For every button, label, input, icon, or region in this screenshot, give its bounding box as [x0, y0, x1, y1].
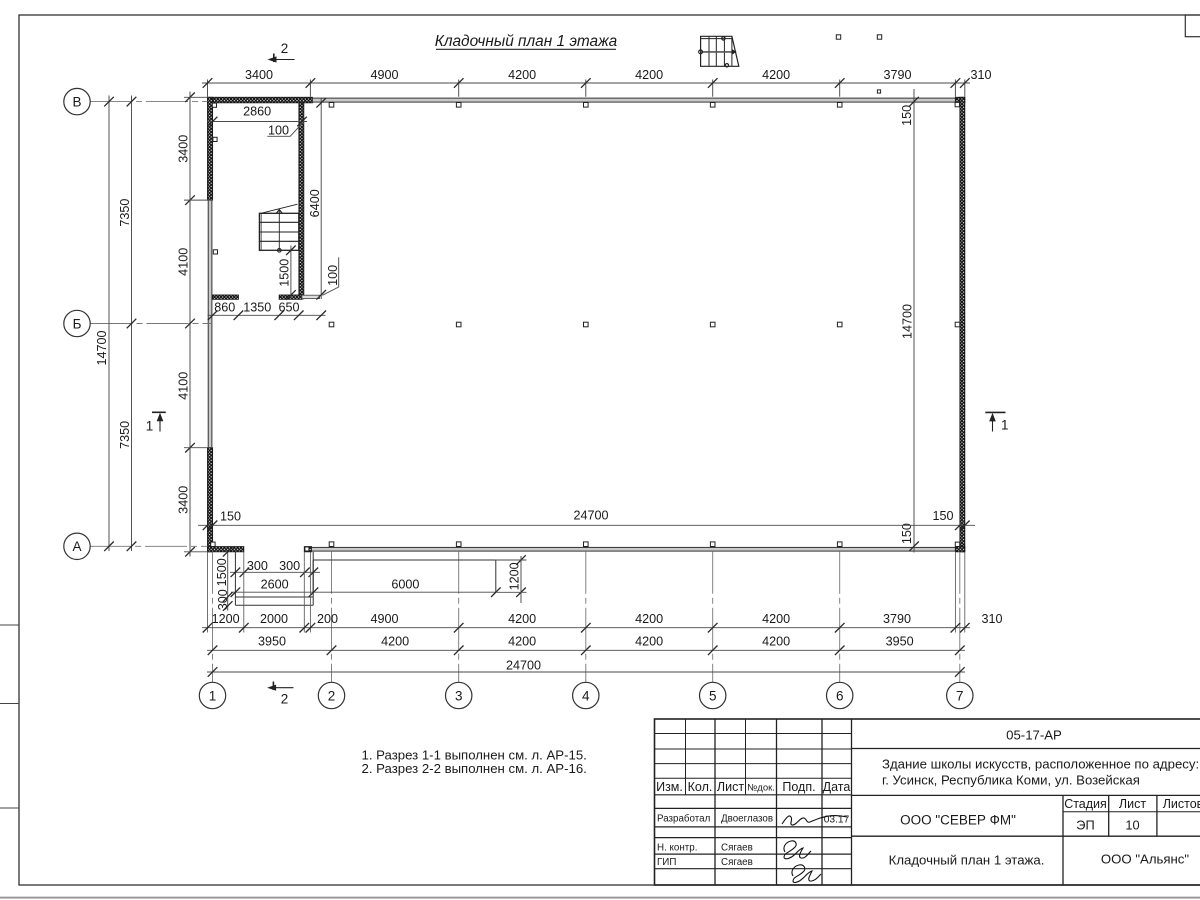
- svg-text:1: 1: [146, 419, 154, 434]
- svg-text:4200: 4200: [635, 635, 663, 649]
- svg-text:4100: 4100: [177, 248, 191, 276]
- svg-text:Изм.: Изм.: [656, 780, 683, 794]
- svg-text:Лист: Лист: [717, 780, 744, 794]
- svg-text:4200: 4200: [635, 612, 663, 626]
- svg-text:1200: 1200: [507, 562, 521, 590]
- svg-text:г. Усинск, Республика Коми, ул: г. Усинск, Республика Коми, ул. Возейска…: [882, 773, 1140, 788]
- svg-text:3400: 3400: [177, 486, 191, 514]
- svg-text:150: 150: [900, 523, 914, 544]
- svg-text:4200: 4200: [508, 635, 536, 649]
- svg-text:Подп.: Подп.: [782, 780, 815, 794]
- svg-text:Стадия: Стадия: [1064, 797, 1107, 811]
- svg-text:310: 310: [981, 612, 1002, 626]
- svg-text:1500: 1500: [215, 558, 229, 586]
- svg-text:4200: 4200: [762, 635, 790, 649]
- svg-text:150: 150: [900, 105, 914, 126]
- svg-text:2600: 2600: [261, 577, 289, 591]
- svg-text:5: 5: [709, 688, 717, 703]
- svg-text:3950: 3950: [258, 635, 286, 649]
- svg-text:100: 100: [268, 124, 289, 138]
- svg-text:№док.: №док.: [747, 783, 775, 794]
- svg-text:2: 2: [328, 688, 336, 703]
- svg-text:24700: 24700: [506, 659, 541, 673]
- svg-text:ЭП: ЭП: [1076, 818, 1094, 833]
- svg-text:650: 650: [278, 301, 299, 315]
- svg-text:7: 7: [956, 688, 964, 703]
- svg-text:300: 300: [279, 559, 300, 573]
- svg-text:4200: 4200: [381, 635, 409, 649]
- svg-text:Сягаев: Сягаев: [721, 843, 753, 854]
- svg-text:4: 4: [582, 688, 590, 703]
- svg-text:14700: 14700: [901, 304, 915, 339]
- svg-text:4200: 4200: [762, 68, 790, 82]
- svg-text:300: 300: [247, 559, 268, 573]
- svg-text:3400: 3400: [245, 68, 273, 82]
- svg-text:310: 310: [970, 68, 991, 82]
- svg-text:6000: 6000: [391, 577, 419, 591]
- svg-text:1: 1: [1001, 418, 1009, 433]
- svg-text:4200: 4200: [508, 612, 536, 626]
- svg-text:24700: 24700: [573, 509, 608, 523]
- svg-text:Лист: Лист: [1119, 797, 1146, 811]
- svg-text:2. Разрез 2-2 выполнен см. л.: 2. Разрез 2-2 выполнен см. л. АР-16.: [362, 761, 587, 776]
- svg-text:Кол.: Кол.: [688, 780, 713, 794]
- svg-text:300: 300: [216, 589, 230, 610]
- svg-text:А: А: [72, 539, 81, 554]
- svg-text:4900: 4900: [370, 612, 398, 626]
- svg-text:1500: 1500: [278, 259, 292, 287]
- svg-text:14700: 14700: [95, 330, 109, 365]
- svg-text:Дата: Дата: [823, 780, 851, 794]
- svg-text:150: 150: [932, 509, 953, 523]
- svg-text:2860: 2860: [243, 105, 271, 119]
- svg-text:Двоеглазов: Двоеглазов: [721, 814, 773, 825]
- svg-text:Кладочный план 1 этажа: Кладочный план 1 этажа: [435, 33, 618, 50]
- svg-text:860: 860: [214, 301, 235, 315]
- svg-text:100: 100: [326, 265, 340, 286]
- svg-text:4200: 4200: [635, 68, 663, 82]
- svg-text:6: 6: [836, 688, 844, 703]
- svg-text:3790: 3790: [883, 612, 911, 626]
- svg-text:2000: 2000: [260, 612, 288, 626]
- svg-text:Н. контр.: Н. контр.: [657, 843, 697, 854]
- svg-text:2: 2: [281, 41, 289, 56]
- svg-text:Сягаев: Сягаев: [721, 857, 753, 868]
- svg-text:Здание школы искусств, располо: Здание школы искусств, расположенное по …: [882, 757, 1199, 772]
- svg-text:4100: 4100: [177, 372, 191, 400]
- svg-text:200: 200: [317, 612, 338, 626]
- svg-text:ООО "Альянс": ООО "Альянс": [1101, 852, 1189, 867]
- svg-text:4200: 4200: [508, 68, 536, 82]
- svg-text:Листов: Листов: [1163, 797, 1200, 811]
- svg-text:4200: 4200: [762, 612, 790, 626]
- svg-text:3: 3: [455, 688, 463, 703]
- svg-text:ГИП: ГИП: [657, 857, 676, 868]
- svg-text:2: 2: [281, 692, 289, 707]
- svg-text:10: 10: [1125, 818, 1139, 833]
- svg-text:1200: 1200: [212, 612, 240, 626]
- svg-text:6400: 6400: [308, 189, 322, 217]
- svg-text:Кладочный план 1 этажа.: Кладочный план 1 этажа.: [889, 853, 1045, 868]
- svg-text:1350: 1350: [243, 301, 271, 315]
- svg-text:Разработал: Разработал: [657, 814, 711, 825]
- svg-text:3790: 3790: [883, 68, 911, 82]
- svg-text:Б: Б: [73, 316, 82, 331]
- svg-text:3950: 3950: [886, 635, 914, 649]
- svg-text:4900: 4900: [370, 68, 398, 82]
- svg-text:05-17-АР: 05-17-АР: [1006, 728, 1062, 743]
- svg-text:3400: 3400: [177, 135, 191, 163]
- svg-text:1: 1: [209, 688, 217, 703]
- svg-text:ООО "СЕВЕР ФМ": ООО "СЕВЕР ФМ": [900, 813, 1016, 828]
- svg-text:7350: 7350: [118, 421, 132, 449]
- svg-text:7350: 7350: [118, 199, 132, 227]
- svg-text:150: 150: [220, 509, 241, 523]
- svg-text:В: В: [72, 94, 81, 109]
